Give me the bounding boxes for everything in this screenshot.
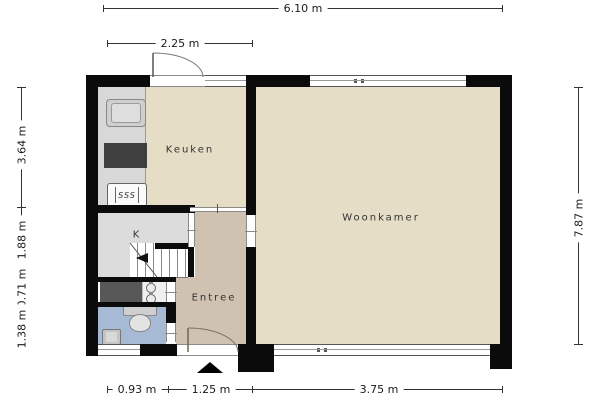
- window-toilet-bottom: [98, 344, 140, 356]
- dimension-left-closet: 1.88 m: [16, 216, 29, 265]
- top-door-opening: [150, 75, 205, 87]
- wall-toilet-entree-post: [166, 307, 176, 323]
- room-entree-floor-lower: [176, 277, 246, 344]
- wall-keuken-woonkamer: [246, 87, 256, 215]
- toilet-bowl-icon: [129, 314, 151, 332]
- dimension-right-total: 7.87 m: [573, 194, 586, 243]
- front-door-opening: [177, 344, 238, 356]
- wall-right: [500, 75, 512, 356]
- door-toilet: [166, 323, 176, 342]
- room-label-woonkamer: Woonkamer: [342, 213, 420, 224]
- window-woonkamer-top: [310, 75, 466, 87]
- room-label-closet: K: [133, 230, 142, 241]
- sink-icon: [106, 99, 146, 127]
- dimension-bottom-entrance: 1.25 m: [187, 384, 236, 396]
- wall-entree-woonkamer: [246, 247, 256, 344]
- dimension-tick: [103, 5, 104, 12]
- dimension-tick: [168, 386, 169, 393]
- cooktop-icon: [104, 143, 147, 168]
- room-label-entree: Entree: [192, 293, 237, 304]
- wall-closet-nook: [98, 277, 176, 282]
- window-keuken-top: [205, 75, 246, 87]
- door-entree-woonkamer: [246, 215, 256, 247]
- floorplan-canvas: SSS: [0, 0, 600, 400]
- wall-bottom-segment: [86, 344, 98, 356]
- wall-bottom-segment: [238, 344, 274, 356]
- dimension-tick: [574, 87, 583, 88]
- dimension-bottom-toilet: 0.93 m: [113, 384, 162, 396]
- dimension-bottom-livingroom: 3.75 m: [355, 384, 404, 396]
- window-tick: [324, 348, 327, 352]
- dimension-kitchen-width: 2.25 m: [156, 38, 205, 50]
- dimension-left-kitchen: 3.64 m: [16, 121, 29, 170]
- door-meter-nook: [166, 282, 176, 302]
- entrance-arrow-icon: [197, 362, 223, 373]
- dimension-tick: [107, 386, 108, 393]
- window-tick: [317, 348, 320, 352]
- window-tick: [361, 79, 364, 83]
- top-door-swing-icon: [153, 53, 203, 77]
- hand-basin-icon: [102, 329, 121, 345]
- dimension-tick: [502, 5, 503, 12]
- room-label-keuken: Keuken: [166, 145, 214, 156]
- door-closet: [188, 213, 195, 247]
- boiler-icon: SSS: [107, 183, 147, 207]
- wall-left: [86, 75, 98, 356]
- dimension-tick: [107, 40, 108, 47]
- wall-bottom-segment: [490, 344, 512, 356]
- boiler-label: SSS: [118, 191, 136, 200]
- dimension-line: [107, 389, 502, 390]
- dimension-tick: [17, 87, 26, 88]
- meter-cabinet: [100, 281, 142, 302]
- partition-tick: [217, 204, 218, 213]
- dimension-left-toilet: 1.38 m: [16, 305, 29, 354]
- window-woonkamer-bottom: [274, 344, 490, 356]
- room-entree-floor-upper: [195, 212, 246, 277]
- dimension-tick: [502, 386, 503, 393]
- dimension-tick: [17, 207, 26, 208]
- dimension-tick: [252, 40, 253, 47]
- entrance-step: [238, 356, 274, 372]
- wall-top-segment: [86, 75, 150, 87]
- wall-top-segment: [246, 75, 310, 87]
- sink-basin-icon: [111, 103, 141, 123]
- window-tick: [354, 79, 357, 83]
- wall-keuken-closet: [98, 205, 195, 213]
- wall-bottom-segment: [140, 344, 177, 356]
- dimension-tick: [252, 386, 253, 393]
- partition-keuken-entree: [190, 207, 246, 212]
- dimension-tick: [574, 344, 583, 345]
- corner-step: [490, 356, 512, 369]
- wall-stairs-right: [188, 245, 194, 277]
- wall-nook-toilet: [98, 302, 176, 307]
- dimension-top-total: 6.10 m: [279, 3, 328, 15]
